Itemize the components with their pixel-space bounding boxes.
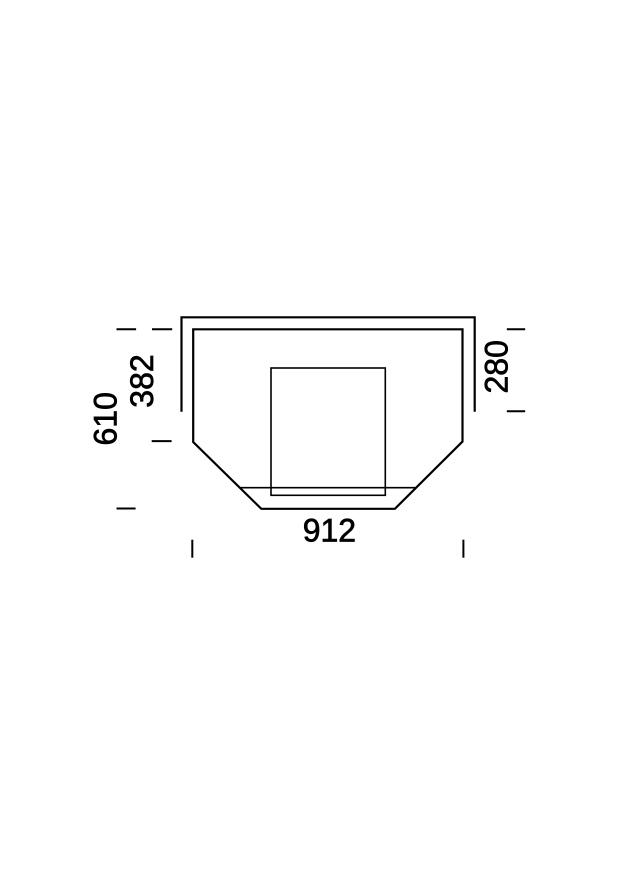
svg-text:610: 610 [88, 392, 124, 445]
svg-text:382: 382 [124, 354, 160, 407]
svg-text:912: 912 [303, 512, 356, 548]
svg-text:280: 280 [479, 340, 515, 393]
